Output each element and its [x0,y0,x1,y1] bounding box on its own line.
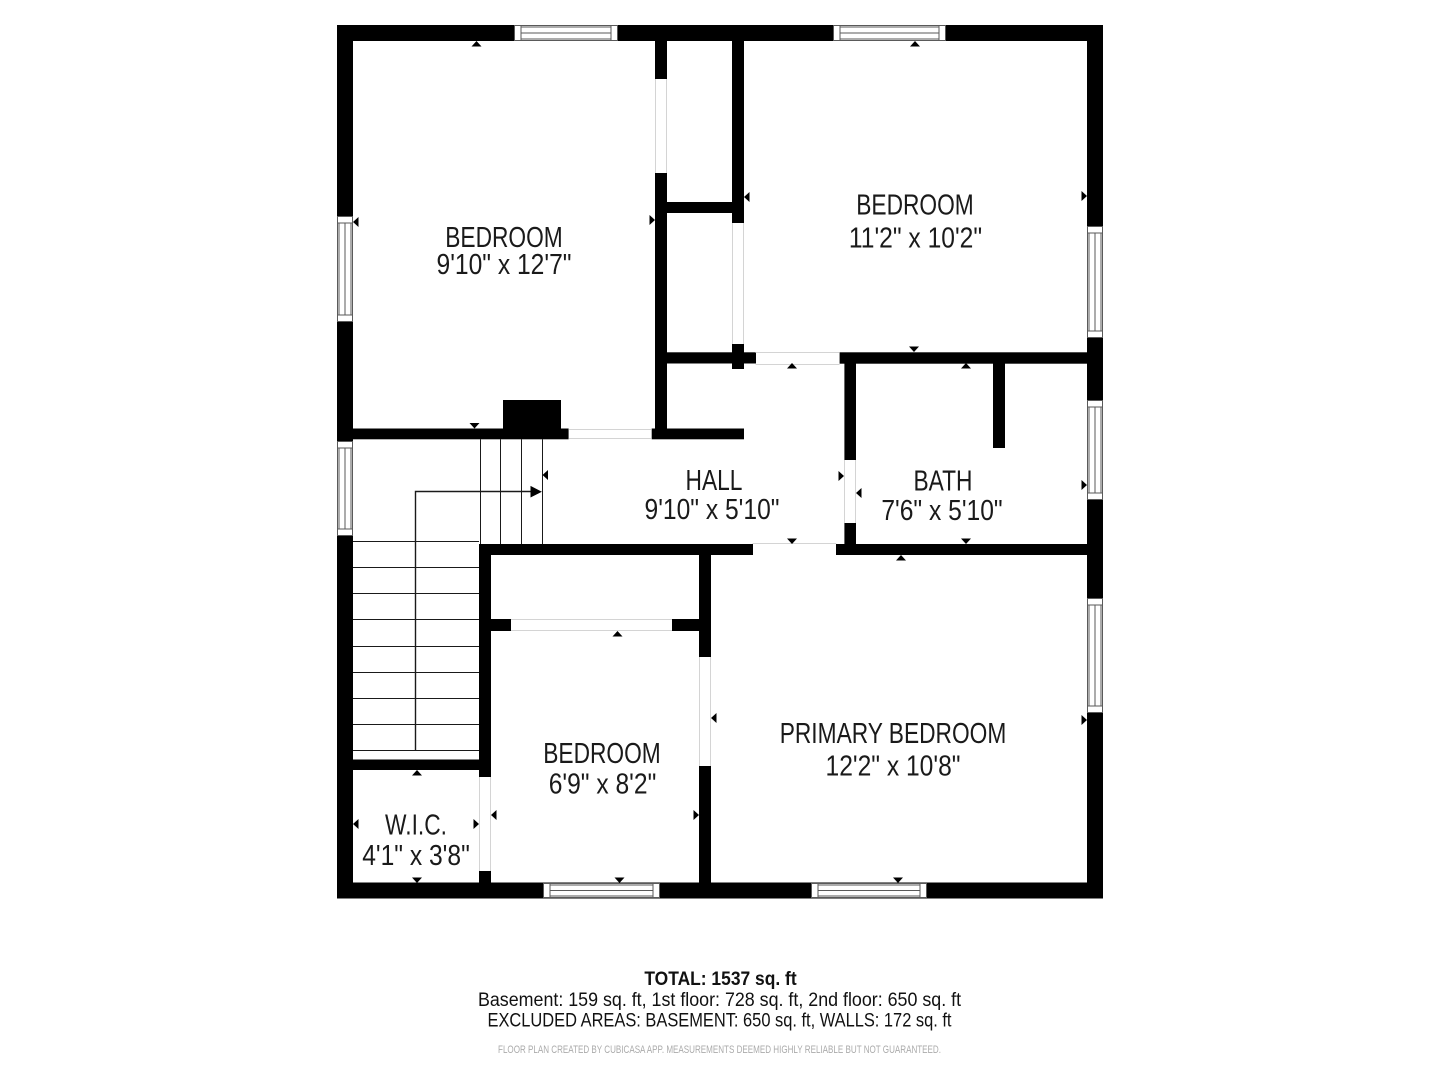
svg-text:W.I.C.: W.I.C. [385,810,447,841]
svg-text:FLOOR PLAN CREATED BY CUBICASA: FLOOR PLAN CREATED BY CUBICASA APP. MEAS… [498,1044,941,1057]
svg-text:TOTAL: 1537 sq. ft: TOTAL: 1537 sq. ft [644,967,796,989]
svg-text:4'1" x 3'8": 4'1" x 3'8" [362,839,470,871]
svg-text:11'2" x 10'2": 11'2" x 10'2" [849,222,982,254]
svg-text:BEDROOM: BEDROOM [543,739,660,770]
svg-text:EXCLUDED AREAS: BASEMENT: 650: EXCLUDED AREAS: BASEMENT: 650 sq. ft, WA… [488,1009,952,1030]
svg-text:9'10" x 5'10": 9'10" x 5'10" [645,493,780,525]
svg-text:6'9" x 8'2": 6'9" x 8'2" [549,768,657,800]
svg-text:12'2" x 10'8": 12'2" x 10'8" [826,750,961,782]
svg-text:9'10" x 12'7": 9'10" x 12'7" [437,248,572,280]
svg-text:PRIMARY BEDROOM: PRIMARY BEDROOM [780,719,1007,750]
svg-text:7'6" x 5'10": 7'6" x 5'10" [881,494,1002,526]
svg-text:BEDROOM: BEDROOM [856,190,973,221]
svg-text:BATH: BATH [914,466,973,497]
svg-text:Basement: 159 sq. ft, 1st floo: Basement: 159 sq. ft, 1st floor: 728 sq.… [478,988,961,1010]
svg-text:HALL: HALL [686,466,743,497]
